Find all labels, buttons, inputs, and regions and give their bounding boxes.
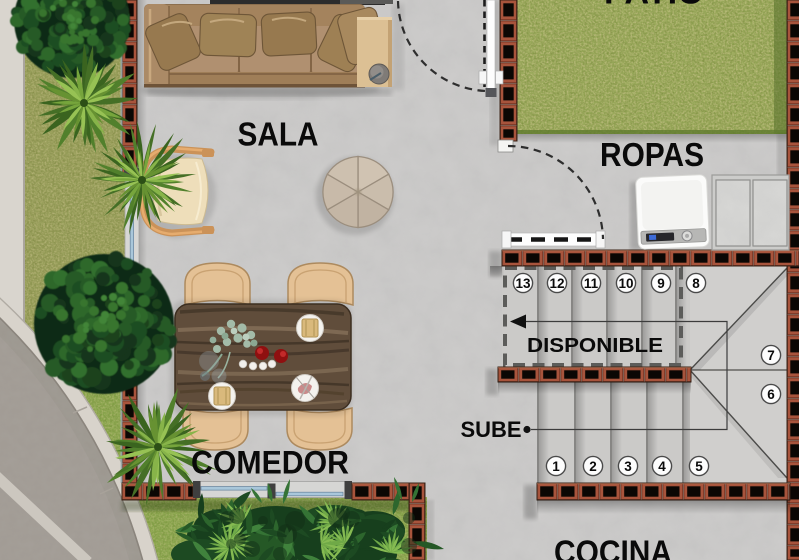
svg-text:DISPONIBLE: DISPONIBLE: [527, 335, 663, 357]
svg-text:12: 12: [549, 276, 564, 291]
svg-text:7: 7: [767, 348, 775, 363]
svg-text:PATIO: PATIO: [604, 0, 704, 11]
svg-text:1: 1: [552, 459, 560, 474]
svg-text:2: 2: [589, 459, 597, 474]
svg-text:11: 11: [584, 276, 599, 291]
svg-text:COMEDOR: COMEDOR: [191, 445, 349, 481]
svg-text:COCINA: COCINA: [554, 535, 672, 560]
svg-text:5: 5: [695, 459, 703, 474]
svg-text:6: 6: [767, 387, 775, 402]
svg-text:9: 9: [657, 276, 665, 291]
svg-text:8: 8: [692, 276, 700, 291]
svg-text:4: 4: [658, 459, 666, 474]
svg-text:SUBE: SUBE: [461, 417, 522, 442]
svg-text:ROPAS: ROPAS: [600, 137, 704, 174]
svg-text:13: 13: [515, 276, 531, 291]
svg-text:10: 10: [618, 276, 633, 291]
svg-text:SALA: SALA: [238, 116, 319, 153]
svg-text:3: 3: [624, 459, 632, 474]
